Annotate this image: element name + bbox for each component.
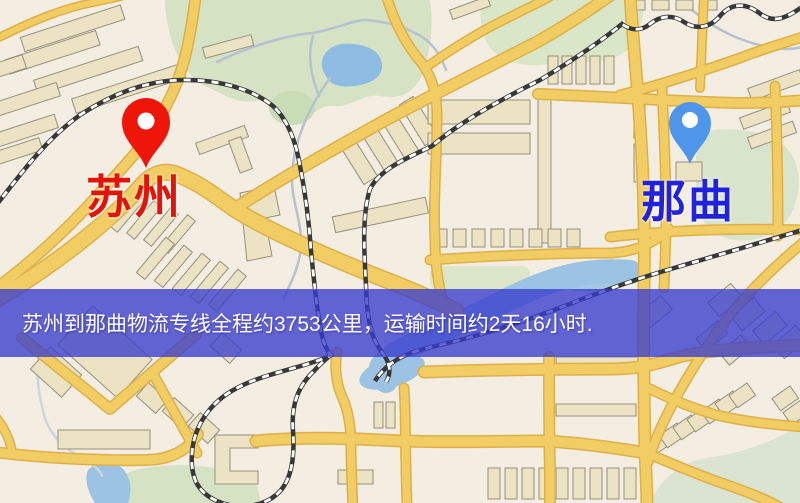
destination-pin-hole: [682, 112, 698, 128]
route-info-text: 苏州到那曲物流专线全程约3753公里，运输时间约2天16小时.: [0, 308, 593, 338]
map-viewport[interactable]: 苏州 那曲 苏州到那曲物流专线全程约3753公里，运输时间约2天16小时.: [0, 0, 800, 503]
map-canvas[interactable]: [0, 0, 800, 503]
route-info-banner: 苏州到那曲物流专线全程约3753公里，运输时间约2天16小时.: [0, 289, 800, 357]
origin-city-label: 苏州: [86, 174, 182, 220]
destination-city-label: 那曲: [641, 179, 735, 224]
origin-pin-hole: [138, 113, 155, 130]
